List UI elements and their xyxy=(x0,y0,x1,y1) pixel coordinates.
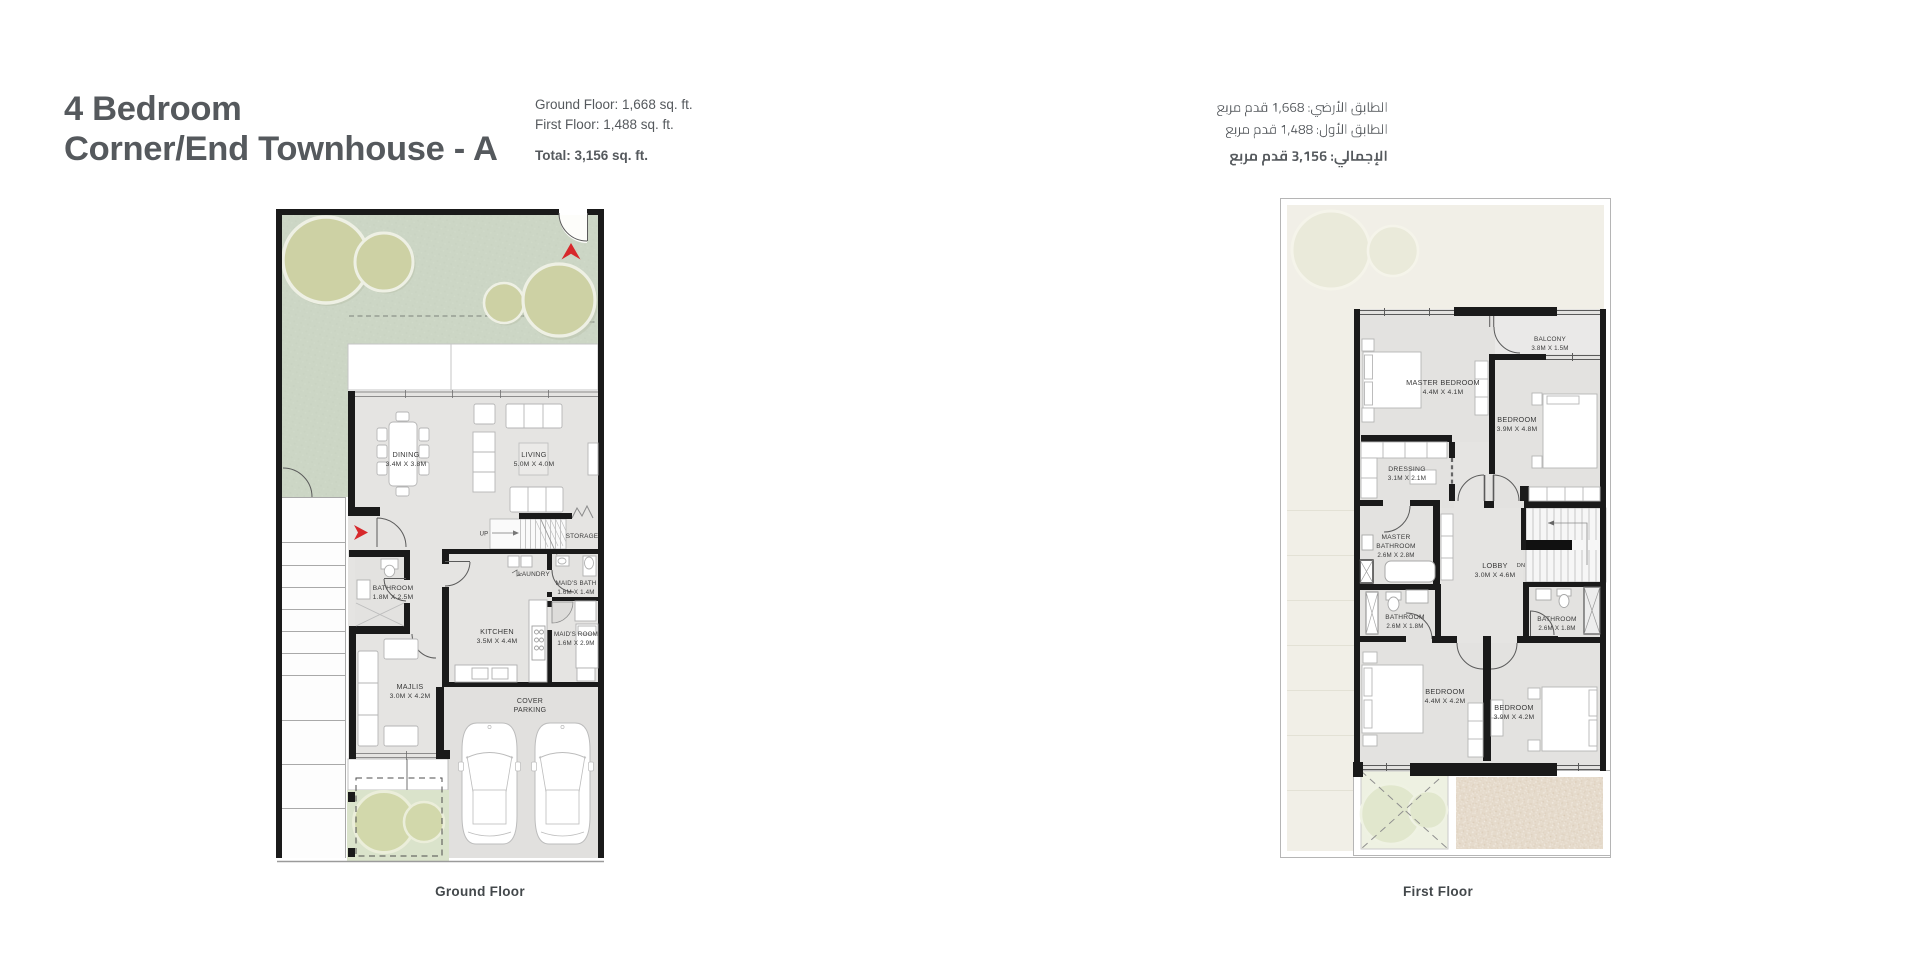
svg-text:BEDROOM: BEDROOM xyxy=(1425,687,1464,696)
svg-text:4.4M X 4.1M: 4.4M X 4.1M xyxy=(1423,389,1464,396)
svg-text:MASTER BEDROOM: MASTER BEDROOM xyxy=(1406,378,1480,387)
svg-text:DN: DN xyxy=(1517,563,1525,569)
svg-text:LIVING: LIVING xyxy=(521,450,546,459)
svg-text:MAJLIS: MAJLIS xyxy=(396,682,423,691)
svg-text:BALCONY: BALCONY xyxy=(1534,336,1566,343)
svg-text:BEDROOM: BEDROOM xyxy=(1497,415,1536,424)
svg-text:MASTER: MASTER xyxy=(1382,534,1411,541)
svg-text:5.0M X 4.0M: 5.0M X 4.0M xyxy=(514,461,555,468)
svg-text:COVER: COVER xyxy=(517,698,543,705)
svg-text:3.4M X 3.8M: 3.4M X 3.8M xyxy=(386,461,427,468)
svg-text:3.5M X 4.4M: 3.5M X 4.4M xyxy=(477,638,518,645)
svg-text:2.6M X 2.8M: 2.6M X 2.8M xyxy=(1377,552,1414,559)
svg-text:LAUNDRY: LAUNDRY xyxy=(518,571,550,578)
svg-text:3.0M X 4.2M: 3.0M X 4.2M xyxy=(390,693,431,700)
svg-text:1.6M X 1.4M: 1.6M X 1.4M xyxy=(557,589,594,596)
svg-text:3.8M X 1.5M: 3.8M X 1.5M xyxy=(1531,345,1568,352)
svg-text:4.4M X 4.2M: 4.4M X 4.2M xyxy=(1425,698,1466,705)
svg-text:DINING: DINING xyxy=(392,450,419,459)
svg-text:MAID'S BATH: MAID'S BATH xyxy=(556,580,597,587)
svg-text:3.9M X 4.8M: 3.9M X 4.8M xyxy=(1497,426,1538,433)
svg-text:3.9M X 4.2M: 3.9M X 4.2M xyxy=(1494,714,1535,721)
svg-text:3.0M X 4.6M: 3.0M X 4.6M xyxy=(1475,572,1516,579)
svg-text:3.1M X 2.1M: 3.1M X 2.1M xyxy=(1388,475,1426,482)
svg-text:2.6M X 1.8M: 2.6M X 1.8M xyxy=(1386,623,1423,630)
svg-text:1.8M X 2.5M: 1.8M X 2.5M xyxy=(373,594,414,601)
svg-text:BATHROOM: BATHROOM xyxy=(1376,543,1416,550)
svg-text:MAID'S ROOM: MAID'S ROOM xyxy=(554,631,598,638)
svg-text:2.6M X 1.8M: 2.6M X 1.8M xyxy=(1538,625,1575,632)
svg-text:BEDROOM: BEDROOM xyxy=(1494,703,1533,712)
svg-text:1.6M X 2.9M: 1.6M X 2.9M xyxy=(557,640,594,647)
svg-text:STORAGE: STORAGE xyxy=(566,533,599,540)
svg-text:KITCHEN: KITCHEN xyxy=(480,627,514,636)
svg-text:BATHROOM: BATHROOM xyxy=(1385,614,1425,621)
svg-text:UP: UP xyxy=(480,532,489,538)
svg-text:LOBBY: LOBBY xyxy=(1482,561,1508,570)
svg-text:DRESSING: DRESSING xyxy=(1388,466,1426,473)
svg-text:BATHROOM: BATHROOM xyxy=(373,585,414,592)
svg-text:PARKING: PARKING xyxy=(514,707,547,714)
svg-text:BATHROOM: BATHROOM xyxy=(1537,616,1577,623)
